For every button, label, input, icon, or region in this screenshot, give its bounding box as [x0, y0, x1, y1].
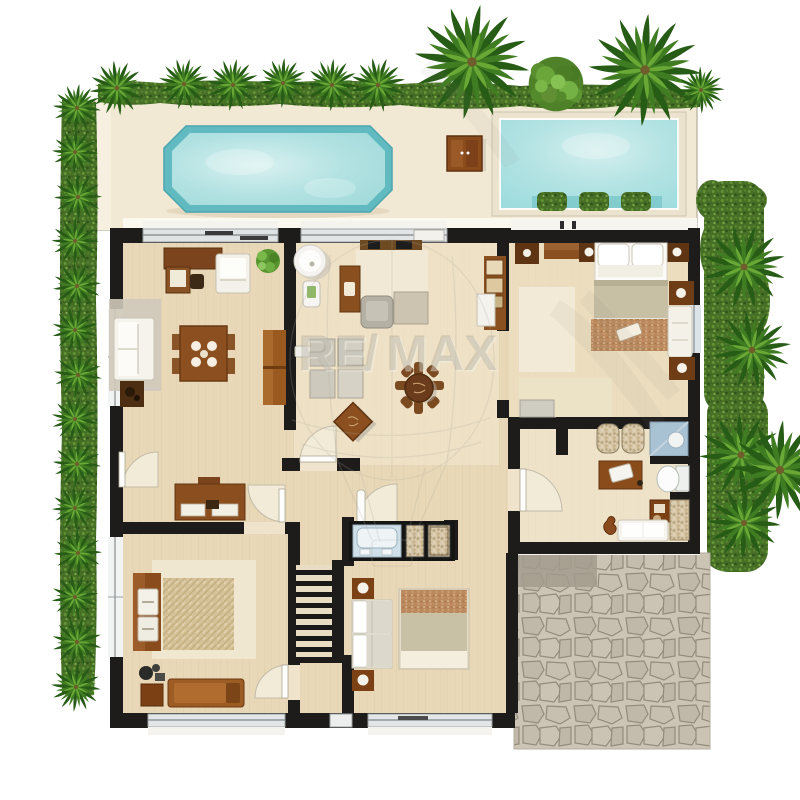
svg-text:RE: RE [298, 325, 367, 381]
svg-text:/: / [364, 325, 378, 381]
svg-text:MAX: MAX [386, 325, 497, 381]
